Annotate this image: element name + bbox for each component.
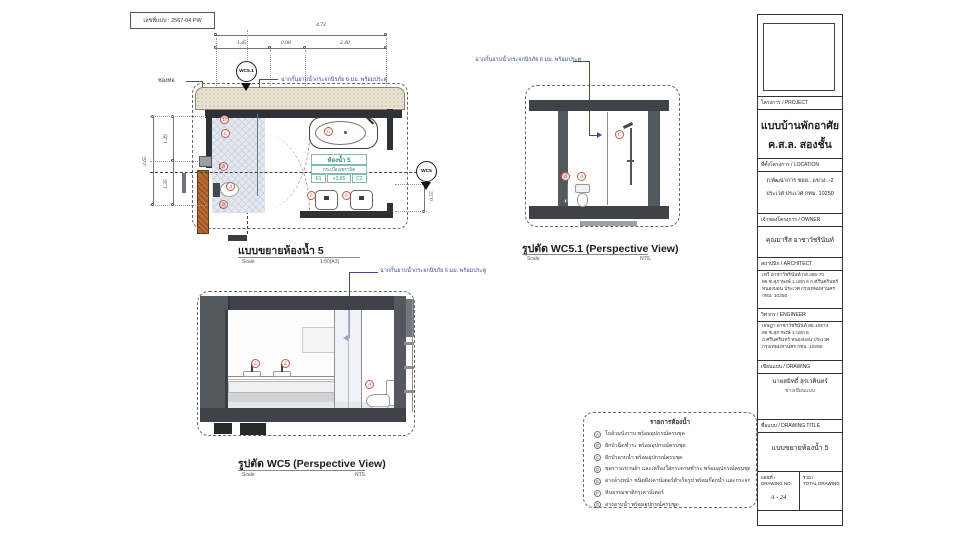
title-block-line: กรุงเทพมหานคร กทม. 10250 <box>762 344 840 351</box>
room-material-tag: กระเบื้องเซรามิค <box>311 165 367 174</box>
fixture-marker: B <box>219 200 228 209</box>
legend-item-text: ชุดราวแขวนผ้า และเครื่องใส่กระดาษชำระ พร… <box>605 465 750 473</box>
glass-leader-wc5-h <box>349 272 378 273</box>
dim-w1: 1.45 <box>237 40 247 46</box>
sink-right-plan <box>350 190 373 210</box>
wc51-floor-slab <box>529 206 669 219</box>
doc-number-box: เลขที่แบบ : 2567-04 PW <box>130 12 215 29</box>
drawing-sheet: { "doc": { "number_label": "เลขที่แบบ : … <box>0 0 960 540</box>
owner-label: เจ้าของโครงการ / OWNER <box>758 213 842 227</box>
drawing-title-label: ชื่อแบบ / DRAWING TITLE <box>758 419 842 433</box>
wc5-top-slab <box>200 296 406 310</box>
wc51-scale-value: NTS. <box>640 256 651 262</box>
engineer-lines: เจษฎา อาชาวัชรินันท์ สย.1057488 ซ.สุภาพง… <box>762 323 840 351</box>
shower-valve <box>627 160 634 162</box>
title-block-line: 88 ซ.สุภาพงษ์ 1 แยก 6 ถ.ศรีนครินทร์ <box>762 279 840 286</box>
sheet-no-label-1: แผ่นที่ / <box>761 474 775 481</box>
dim-w2: 0.90 <box>281 40 291 46</box>
dim-h2: 1.35 <box>163 179 169 189</box>
glass-note-wc51: ฉากกั้นอาบน้ำกระจกนิรภัย 6 มม. พร้อมประต… <box>475 56 581 64</box>
wc51-toilet-tank <box>575 184 590 193</box>
fixture-marker: B <box>561 172 570 181</box>
engineer-label: วิศวกร / ENGINEER <box>758 308 842 322</box>
legend-item: E อ่างล้างหน้า ชนิดฝังเคาน์เตอร์สำเร็จรู… <box>594 476 750 486</box>
fixture-marker: F <box>307 191 316 200</box>
fixture-marker: F <box>342 191 351 200</box>
fixture-marker: A <box>365 380 374 389</box>
fixture-marker: A <box>226 182 235 191</box>
room-level: +3.65 <box>333 176 346 182</box>
sink-left-tap <box>324 196 329 200</box>
dim-tick <box>214 33 217 36</box>
wc51-glass-partition-line <box>607 112 608 205</box>
legend-item-key: E <box>594 478 601 485</box>
dim-line-segments <box>216 48 386 49</box>
threshold-block <box>228 235 247 241</box>
doc-number-text: เลขที่แบบ : 2567-04 PW <box>143 17 201 25</box>
dim-ext-line <box>150 161 206 162</box>
section-cut-line-horizontal <box>150 172 432 173</box>
shelf-board <box>404 390 414 393</box>
sheet-number-row: แผ่นที่ / DRAWING NO. รวม / TOTAL DRAWIN… <box>758 471 842 511</box>
stamp-box <box>763 23 835 91</box>
fixture-marker: E <box>251 359 260 368</box>
owner-name: คุณมารีส อาชาวัชรินันท์ <box>758 235 842 245</box>
drawer-role: ช่างเขียนแบบ <box>758 387 842 395</box>
architect-lines: เทวี อาชาวัชรินันท์ กส.285-7088 ซ.สุภาพง… <box>762 272 840 300</box>
dim-ext-line <box>150 205 206 206</box>
drawing-title-value: แบบขยายห้องน้ำ 5 <box>758 443 842 454</box>
sheet-number-value: A - 24 <box>758 494 799 501</box>
legend-title: รายการห้องน้ำ <box>584 417 756 427</box>
project-name-line1: แบบบ้านพักอาศัย <box>758 117 842 134</box>
project-label: โครงการ / PROJECT <box>758 96 842 110</box>
dim-ext-line <box>395 211 427 212</box>
legend-item: B ฝักบัวฉีดชำระ พร้อมอุปกรณ์ครบชุด <box>594 441 750 451</box>
fixture-marker: C <box>615 130 624 139</box>
wall-top <box>205 110 402 118</box>
dim-line-total <box>216 35 386 36</box>
sink-right-tap <box>359 196 364 200</box>
exterior-wall-band <box>195 87 405 110</box>
total-label-1: รวม / <box>803 474 813 481</box>
dim-tick <box>268 46 271 49</box>
dim-total-width: 4.73 <box>316 22 326 28</box>
room-name: ห้องน้ำ 5 <box>328 155 351 165</box>
glass-note-wc5: ฉากกั้นอาบน้ำกระจกนิรภัย 6 มม. พร้อมประต… <box>380 267 486 275</box>
pipe-shaft-label: ช่องท่อ <box>158 77 175 85</box>
glass-leader-h <box>259 79 278 80</box>
legend-item-text: ฝักบัวอาบน้ำ พร้อมอุปกรณ์ครบชุด <box>605 454 683 462</box>
location-label: ที่ตั้งโครงการ / LOCATION <box>758 158 842 172</box>
legend-item-key: C <box>594 454 601 461</box>
section-marker-wc51-label: WC5.1 <box>239 69 254 74</box>
project-name-line2: ค.ส.ล. สองชั้น <box>758 136 842 153</box>
spray-head <box>564 199 567 203</box>
section-ext-line <box>247 30 248 62</box>
bathtub-drain <box>344 131 347 134</box>
pipe-shaft-leader-h <box>186 81 202 82</box>
title-block-line: ถ.ศรีนครินทร์ หนองบอน ประเวศ <box>762 337 840 344</box>
location-line1: ถ.พัฒนาการ ซอย.. แขวง..-2 <box>758 177 842 185</box>
wc51-floor-shadow <box>580 221 637 226</box>
dim-w3: 2.40 <box>340 40 350 46</box>
wc5-right-column <box>394 296 406 414</box>
wc5-underfloor-block <box>214 423 232 434</box>
legend-item: D ชุดราวแขวนผ้า และเครื่องใส่กระดาษชำระ … <box>594 464 750 474</box>
architect-label: สถาปนิก / ARCHITECT <box>758 257 842 271</box>
legend-item-text: อ่างล้างหน้า ชนิดฝังเคาน์เตอร์สำเร็จรูป … <box>605 477 750 485</box>
fixture-marker: G <box>324 127 333 136</box>
plan-scale-label: Scale <box>242 259 255 265</box>
sheet-number-divider <box>799 472 800 510</box>
legend-item-text: ฝักบัวฉีดชำระ พร้อมอุปกรณ์ครบชุด <box>605 442 686 450</box>
plan-scale-value: 1:50(A3) <box>320 259 339 265</box>
legend-item: F หินธรรมชาติกรุเคาน์เตอร์ <box>594 488 750 498</box>
section-marker-wc5: WC5 <box>416 161 437 182</box>
spray-hose <box>567 184 568 202</box>
wc51-title-rule <box>522 254 648 255</box>
legend-item-key: A <box>594 431 601 438</box>
room-name-tag: ห้องน้ำ 5 <box>311 154 367 165</box>
shelf-board <box>404 342 414 345</box>
drawer-name: นายสมิทธิ์ สุรเวคินทร์ <box>758 376 842 386</box>
total-label-2: TOTAL DRAWING <box>803 481 840 486</box>
legend-item-text: หินธรรมชาติกรุเคาน์เตอร์ <box>605 489 664 497</box>
legend-item-text: โถส้วมนั่งราบ พร้อมอุปกรณ์ครบชุด <box>605 430 685 438</box>
dim-tick <box>303 46 306 49</box>
wc5-scale-label: Scale <box>242 472 255 478</box>
sink-left-plan <box>315 190 338 210</box>
section-marker-wc51: WC5.1 <box>236 61 257 82</box>
dim-h1: 1.29 <box>163 134 169 144</box>
shelf-upright <box>412 300 413 412</box>
legend-item-key: G <box>594 501 601 508</box>
drawing-by-label: เขียนแบบ / DRAWING <box>758 360 842 374</box>
fixture-marker: B <box>219 162 228 171</box>
location-line2: ประเวศ ประเวศ กทม. 10250 <box>758 190 842 198</box>
dim-right: 0.55 <box>429 191 435 201</box>
wc5-underfloor-block <box>240 423 266 435</box>
shelf-board <box>404 366 414 369</box>
room-ceiling-code-tag: C2 <box>352 174 367 183</box>
dim-ext-line <box>216 38 217 88</box>
legend-item-key: D <box>594 466 601 473</box>
title-block: โครงการ / PROJECT แบบบ้านพักอาศัย ค.ส.ล.… <box>757 14 843 526</box>
plan-title-rule <box>238 257 360 258</box>
glass-leader-wc51-h <box>573 61 590 62</box>
wc5-left-wall <box>200 296 228 414</box>
fixture-marker: C <box>221 129 230 138</box>
sheet-no-label-2: DRAWING NO. <box>761 481 792 486</box>
legend-item-key: F <box>594 490 601 497</box>
fixture-marker: A <box>577 172 586 181</box>
room-level-tag: +3.65 <box>327 174 351 183</box>
room-ceiling-code: C2 <box>356 176 362 182</box>
section-cut-arrow-wc5 <box>421 182 431 190</box>
wc51-toilet-bowl <box>577 193 588 207</box>
wall-right-upper <box>387 109 393 150</box>
wc51-right-column <box>648 111 660 206</box>
title-block-line: หนองบอน ประเวศ กรุงเทพมหานคร <box>762 286 840 293</box>
room-floor-code: F1 <box>316 176 322 182</box>
wc5-title-rule <box>238 470 365 471</box>
glass-partition-line-plan <box>257 114 258 196</box>
room-material: กระเบื้องเซรามิค <box>323 166 355 173</box>
wc5-glass-partition-line <box>348 310 349 411</box>
legend-item-key: B <box>594 442 601 449</box>
dim-h-total: 2.65 <box>142 156 148 166</box>
legend-item: A โถส้วมนั่งราบ พร้อมอุปกรณ์ครบชุด <box>594 429 750 439</box>
title-block-line: กทม. 10250 <box>762 293 840 300</box>
door-jamb-block <box>182 173 186 193</box>
legend-item: G อ่างอาบน้ำ พร้อมอุปกรณ์ครบชุด <box>594 500 750 510</box>
wc51-scale-label: Scale <box>527 256 540 262</box>
legend-box: รายการห้องน้ำ A โถส้วมนั่งราบ พร้อมอุปกร… <box>583 412 757 508</box>
wood-door-leaf <box>197 170 209 234</box>
bathtub-basin <box>315 121 366 145</box>
room-floor-code-tag: F1 <box>311 174 326 183</box>
counter-fascia <box>228 381 335 393</box>
section-cut-arrow-wc51 <box>241 83 251 91</box>
wc51-top-slab <box>529 100 669 111</box>
shower-pipe <box>630 128 632 185</box>
legend-item: C ฝักบัวอาบน้ำ พร้อมอุปกรณ์ครบชุด <box>594 453 750 463</box>
fixture-marker: D <box>220 115 229 124</box>
dim-ext-line <box>150 116 206 117</box>
counter-shadow <box>228 393 335 402</box>
title-block-line: เทวี อาชาวัชรินันท์ กส.285-70 <box>762 272 840 279</box>
dim-tick <box>384 33 387 36</box>
title-block-line: เจษฎา อาชาวัชรินันท์ สย.10574 <box>762 323 840 330</box>
section-marker-wc5-label: WC5 <box>421 169 432 174</box>
fixture-marker: E <box>281 359 290 368</box>
title-block-line: 88 ซ.สุภาพงษ์ 1 แยก 6 <box>762 330 840 337</box>
wc5-floor-slab <box>200 408 406 422</box>
toilet-tank-plan <box>213 183 220 197</box>
legend-item-text: อ่างอาบน้ำ พร้อมอุปกรณ์ครบชุด <box>605 501 679 509</box>
wc5-upper-cabinet <box>302 327 335 353</box>
wc5-scale-value: NTS. <box>355 472 366 478</box>
vanity-counter-edge <box>300 211 393 218</box>
